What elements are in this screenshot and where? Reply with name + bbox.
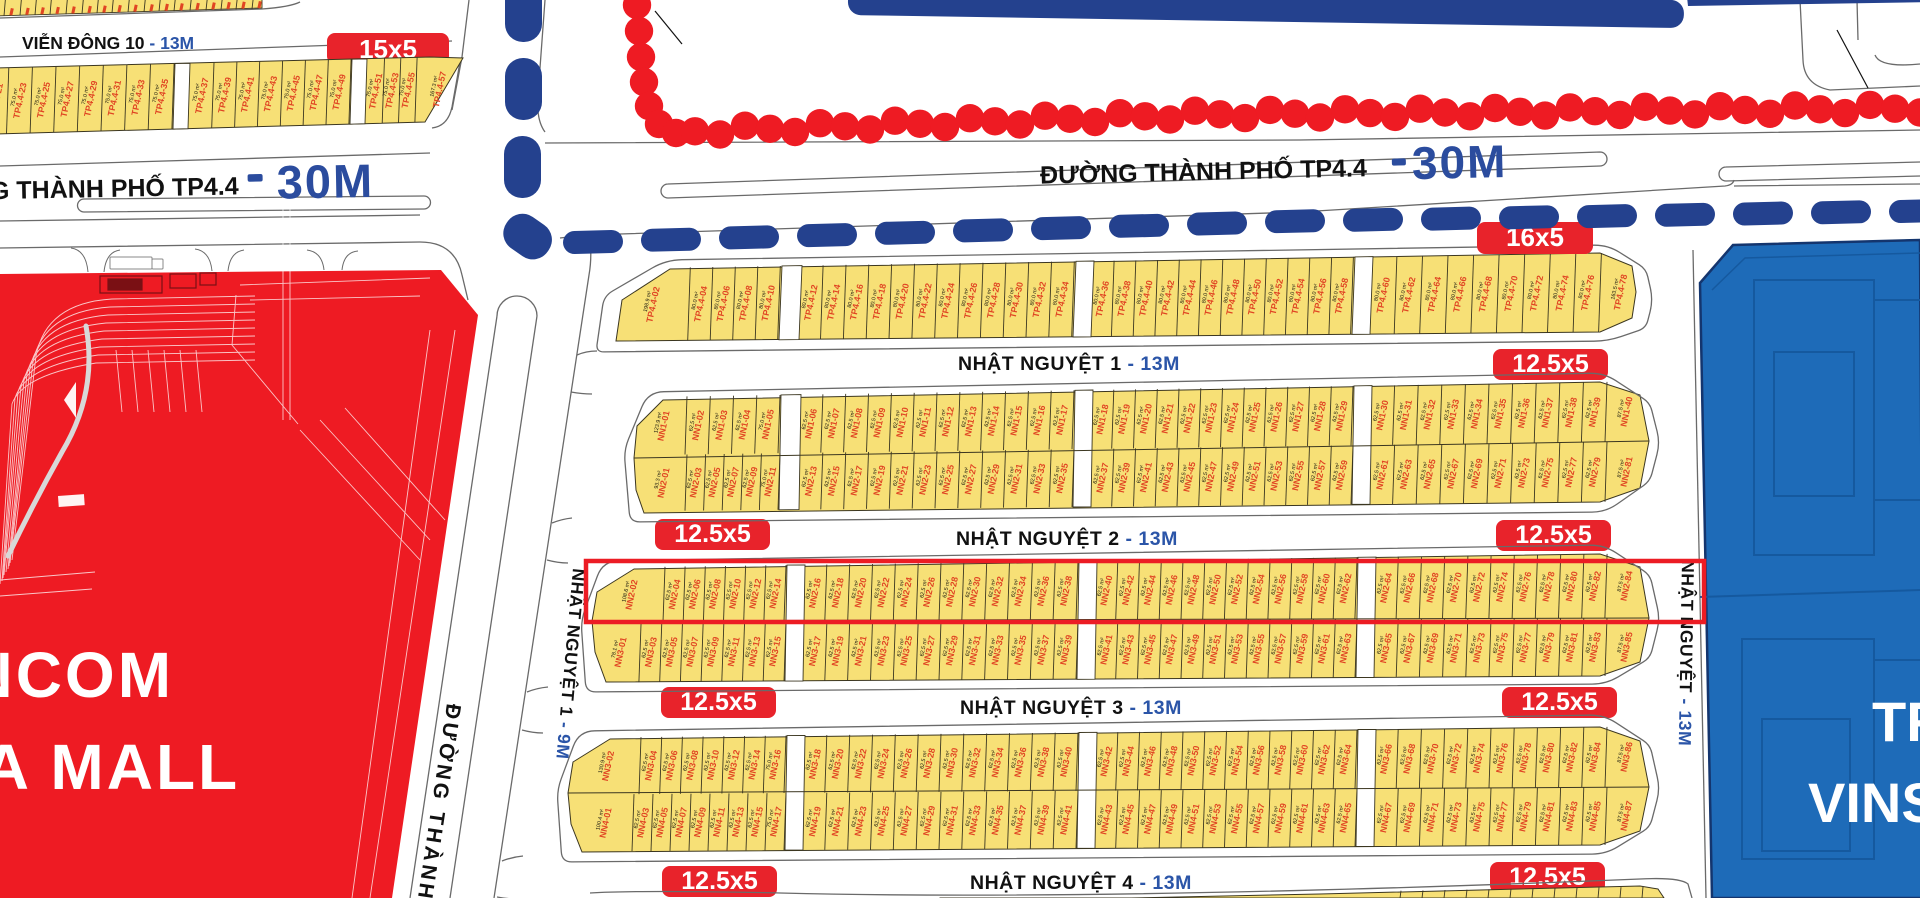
svg-text:12.5x5: 12.5x5 [1509, 863, 1586, 891]
svg-text:12.5x5: 12.5x5 [680, 688, 757, 716]
svg-text:NHẬT NGUYỆT 3 - 13M: NHẬT NGUYỆT 3 - 13M [960, 695, 1182, 719]
svg-text:12.5x5: 12.5x5 [681, 867, 758, 895]
svg-text:VINSCHOOL: VINSCHOOL [1808, 771, 1920, 834]
svg-text:NHẬT NGUYỆT 4 - 13M: NHẬT NGUYỆT 4 - 13M [970, 870, 1192, 894]
svg-text:VIỄN ĐÔNG 10 - 13M: VIỄN ĐÔNG 10 - 13M [22, 32, 194, 53]
svg-text:12.5x5: 12.5x5 [1521, 688, 1598, 716]
svg-text:NHẬT NGUYỆT - 13M: NHẬT NGUYỆT - 13M [1675, 560, 1699, 747]
svg-text:MEGA MALL: MEGA MALL [0, 731, 240, 803]
svg-text:NHẬT NGUYỆT 1 - 13M: NHẬT NGUYỆT 1 - 13M [958, 351, 1180, 375]
svg-text:TRƯỜNG: TRƯỜNG [1872, 690, 1920, 753]
svg-text:30M: 30M [276, 154, 374, 209]
svg-text:30M: 30M [1411, 135, 1508, 189]
svg-text:VINCOM: VINCOM [0, 639, 174, 711]
svg-text:NHẬT NGUYỆT 2 - 13M: NHẬT NGUYỆT 2 - 13M [956, 526, 1178, 550]
svg-text:12.5x5: 12.5x5 [674, 520, 751, 548]
